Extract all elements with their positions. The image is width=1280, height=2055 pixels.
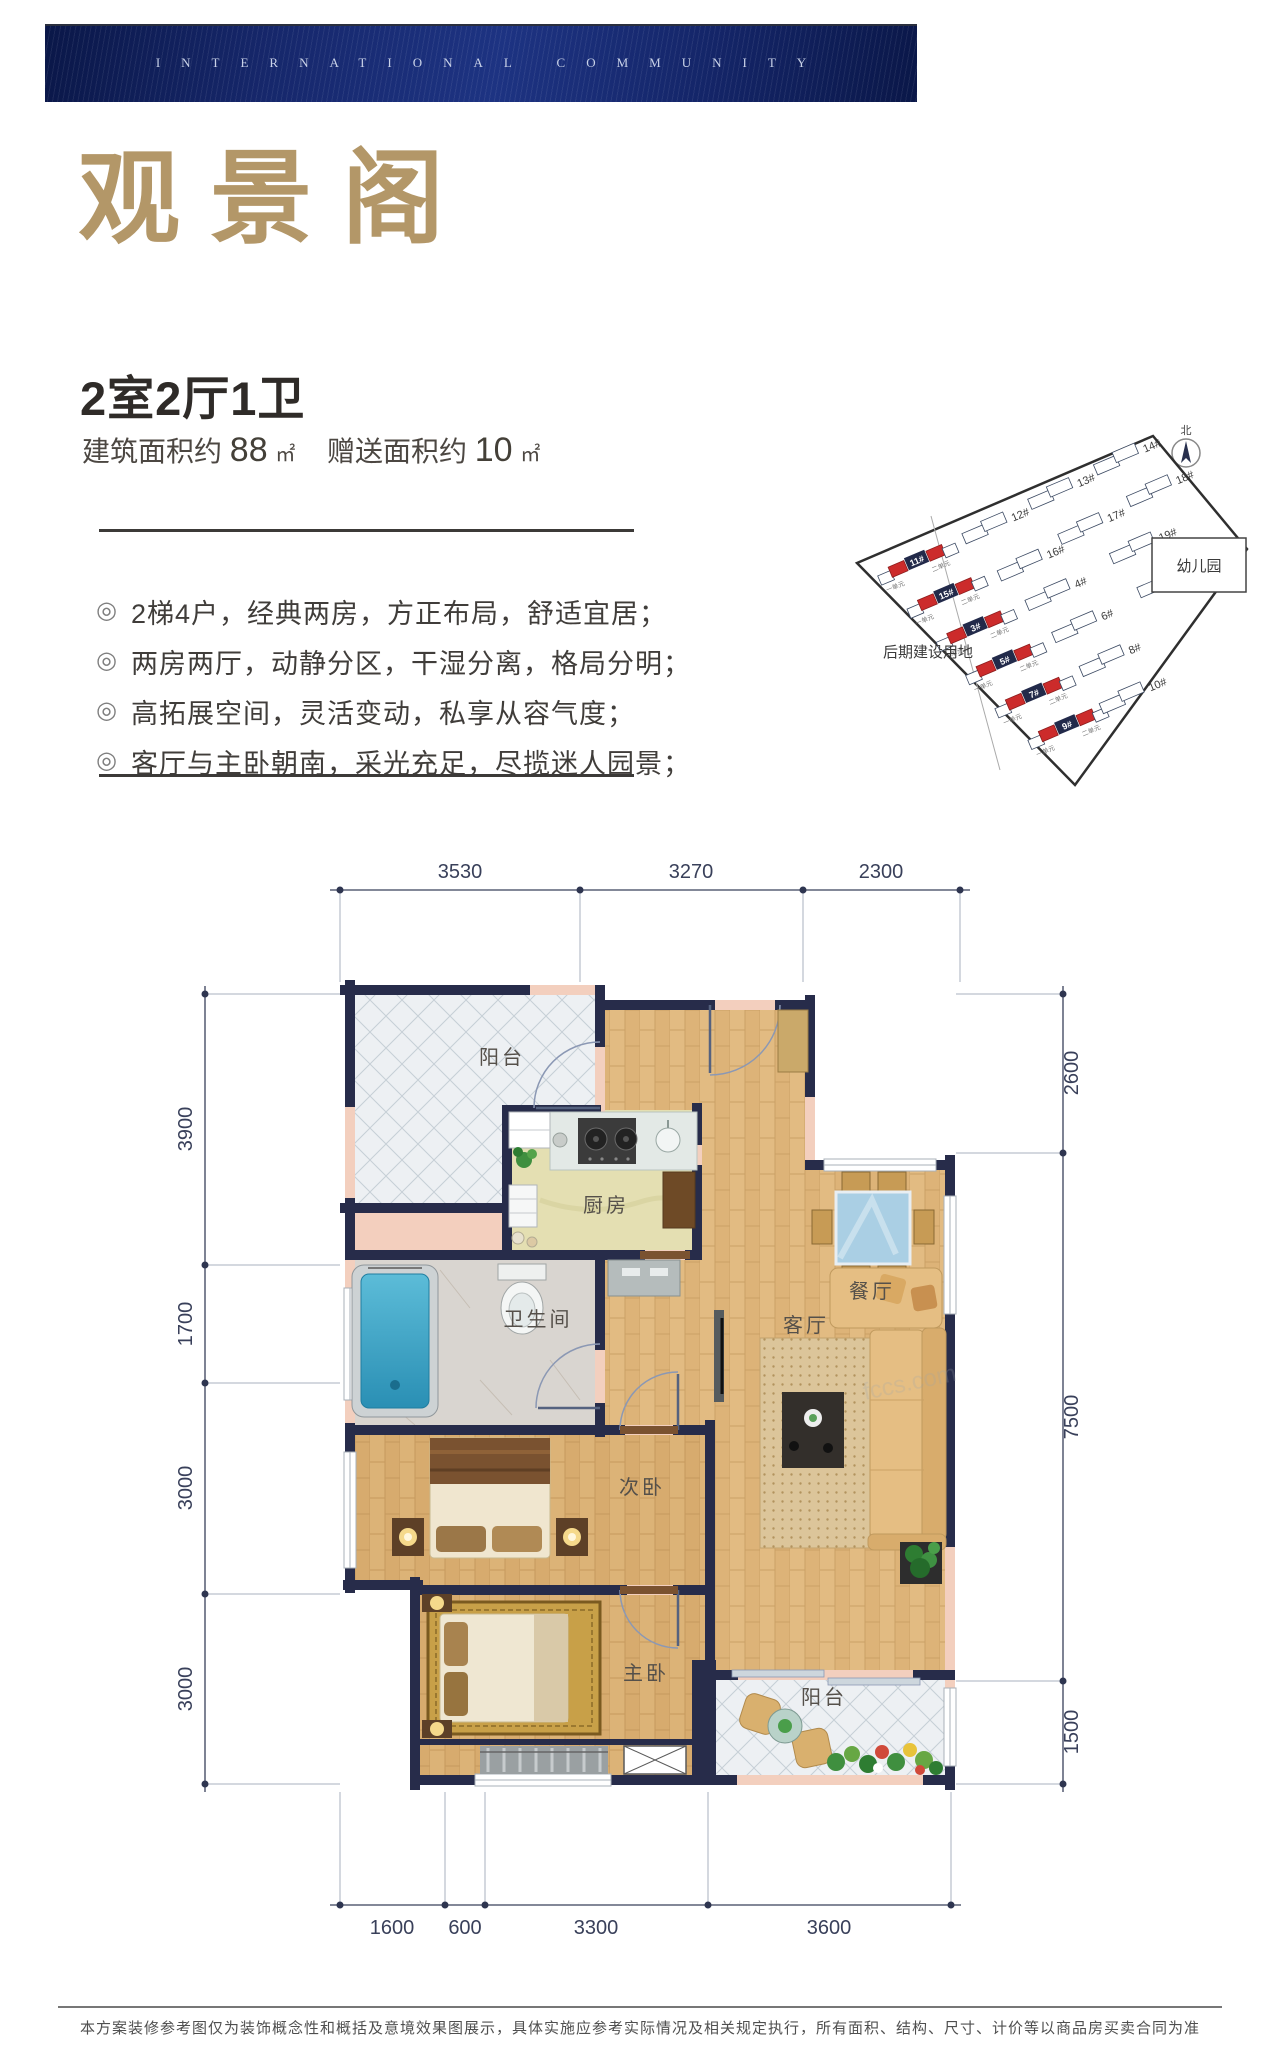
banner-text: INTERNATIONAL COMMUNITY — [45, 26, 917, 100]
bullet-icon: ◎ — [96, 599, 118, 623]
sofa — [870, 1330, 924, 1538]
sink — [656, 1128, 680, 1152]
fridge — [663, 1172, 695, 1228]
dim-bottom-3: 3300 — [574, 1917, 619, 1939]
side-cabinet — [608, 1260, 680, 1296]
toilet — [498, 1264, 546, 1280]
feature-item-3: ◎高拓展空间，灵活变动，私享从容气度； — [96, 686, 691, 736]
room-label-living: 客厅 — [783, 1314, 829, 1337]
floor-plan: 阳台 厨房 卫生间 次卧 主卧 客厅 餐厅 阳台 fccs.com — [130, 840, 1110, 1980]
feature-text: 两房两厅，动静分区，干湿分离，格局分明； — [131, 642, 691, 681]
build-area-value: 88 — [230, 431, 268, 469]
build-area-unit: ㎡ — [275, 444, 295, 466]
room-label-balcony-top: 阳台 — [479, 1046, 525, 1069]
dim-top-2: 3270 — [669, 861, 714, 883]
feature-text: 高拓展空间，灵活变动，私享从容气度； — [131, 692, 635, 731]
room-label-second-bed: 次卧 — [619, 1476, 665, 1499]
kindergarten-label: 幼儿园 — [1176, 558, 1221, 575]
dim-left-4: 3000 — [175, 1667, 197, 1712]
build-area-label: 建筑面积约 — [82, 436, 222, 467]
bullet-icon: ◎ — [96, 649, 118, 673]
north-compass-icon: 北 — [1172, 424, 1200, 467]
gift-area-label: 赠送面积约 — [327, 436, 467, 467]
future-land-label: 后期建设用地 — [883, 644, 973, 661]
corner-plant-icon — [900, 1542, 942, 1584]
footer-divider — [58, 2006, 1222, 2008]
dim-right-1: 2600 — [1061, 1051, 1083, 1096]
entry-cabinet — [778, 1010, 808, 1072]
area-line: 建筑面积约 88 ㎡ 赠送面积约 10 ㎡ — [82, 430, 540, 470]
gift-area-unit: ㎡ — [520, 444, 540, 466]
room-label-kitchen: 厨房 — [583, 1194, 629, 1217]
kindergarten-block: 幼儿园 — [1152, 538, 1246, 592]
gift-area-value: 10 — [475, 431, 513, 469]
dim-bottom-1: 1600 — [370, 1917, 415, 1939]
room-label-dining: 餐厅 — [849, 1280, 895, 1303]
page-title: 观景阁 — [78, 142, 474, 259]
coffee-table — [782, 1392, 844, 1468]
flyer-page: INTERNATIONAL COMMUNITY 观景阁 2室2厅1卫 建筑面积约… — [0, 0, 1280, 2055]
unit-layout: 2室2厅1卫 — [80, 360, 305, 429]
feature-text: 2梯4户，经典两房，方正布局，舒适宜居； — [131, 592, 667, 631]
dim-left-3: 3000 — [175, 1466, 197, 1511]
dim-left-1: 3900 — [175, 1107, 197, 1152]
dim-top-3: 2300 — [859, 861, 904, 883]
divider-bottom — [99, 774, 634, 777]
feature-list: ◎2梯4户，经典两房，方正布局，舒适宜居；◎两房两厅，动静分区，干湿分离，格局分… — [96, 586, 691, 786]
dim-left-2: 1700 — [175, 1302, 197, 1347]
disclaimer: 本方案装修参考图仅为装饰概念性和概括及意境效果图展示，具体实施应参考实际情况及相… — [0, 2017, 1280, 2038]
room-label-balcony-bottom: 阳台 — [801, 1686, 847, 1709]
dim-right-3: 1500 — [1061, 1710, 1083, 1755]
bullet-icon: ◎ — [96, 749, 118, 773]
feature-item-1: ◎2梯4户，经典两房，方正布局，舒适宜居； — [96, 586, 691, 636]
north-label: 北 — [1181, 424, 1192, 437]
dim-right-2: 7500 — [1061, 1395, 1083, 1440]
feature-item-2: ◎两房两厅，动静分区，干湿分离，格局分明； — [96, 636, 691, 686]
dim-bottom-2: 600 — [448, 1917, 481, 1939]
feature-item-4: ◎客厅与主卧朝南，采光充足，尽揽迷人园景； — [96, 736, 691, 786]
brand-banner: INTERNATIONAL COMMUNITY — [45, 24, 917, 102]
room-label-master-bed: 主卧 — [623, 1662, 669, 1685]
dim-top-1: 3530 — [438, 861, 483, 883]
site-plan: 北 11#一单元二单元12#13#14#15#一单元二单元16#17#18#3#… — [838, 373, 1266, 805]
dim-bottom-4: 3600 — [807, 1917, 852, 1939]
bullet-icon: ◎ — [96, 699, 118, 723]
room-label-bath: 卫生间 — [504, 1308, 573, 1331]
divider-top — [99, 529, 634, 532]
wardrobe — [480, 1746, 608, 1774]
